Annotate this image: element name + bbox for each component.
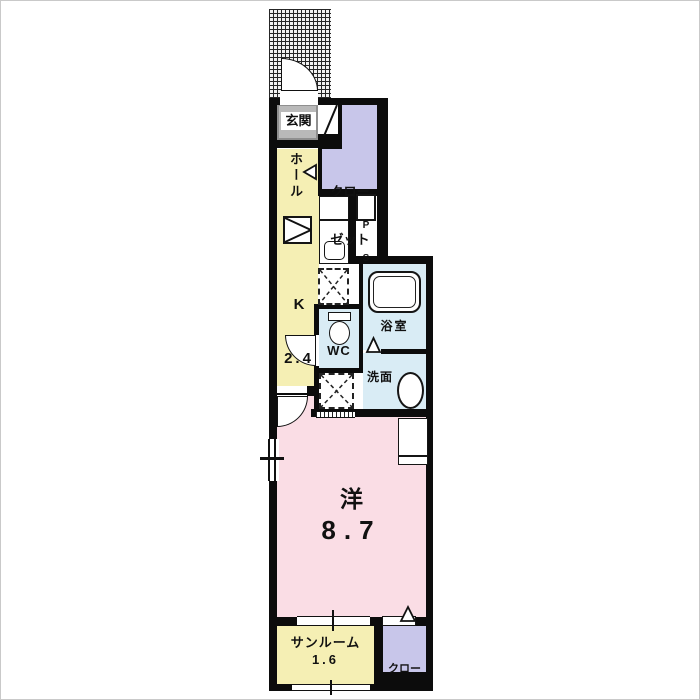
wall-bath-washroom [381, 349, 426, 354]
window-crossbar [260, 457, 284, 460]
kitchen-label: K 2.4 [277, 260, 321, 404]
wc-label: WC [319, 344, 359, 359]
entrance-door-opening [280, 91, 318, 105]
window-line-inner [274, 439, 276, 481]
closet-top-label: クロー ゼット [322, 152, 378, 280]
bathtub-inner [373, 276, 416, 308]
counter-shelf [398, 418, 428, 456]
toilet-tank [328, 312, 351, 321]
entrance-door-recess [318, 104, 338, 135]
western-room-label: 洋 [277, 486, 426, 512]
western-room-size: 8.7 [277, 516, 426, 546]
wall-room-bottom-c [415, 617, 426, 626]
closet-door-track [382, 616, 416, 626]
wall-right-upper [377, 98, 388, 264]
closet-bottom-label-line1: クロー [383, 662, 426, 676]
closet-top-label-line1: クロー [322, 184, 378, 200]
genkan-label-chip: 玄関 [281, 112, 316, 130]
bath-label: 浴室 [363, 320, 426, 334]
counter-shelf-edge [398, 456, 428, 465]
wall-sunroom-closet [374, 617, 383, 691]
sliding-window-center-tick [332, 610, 334, 631]
stove-symbol [283, 216, 312, 244]
wall-right-main [426, 256, 433, 691]
closet-top-label-line2: ゼット [322, 232, 378, 248]
toilet-bowl [329, 321, 350, 345]
washroom-threshold [316, 411, 355, 418]
wash-basin [397, 372, 424, 409]
washroom-label: 洗面 [359, 371, 401, 385]
kitchen-label-size: 2.4 [277, 350, 321, 368]
entry-step-edge [277, 140, 318, 148]
hall-label: ホール [284, 151, 302, 201]
wall-left [269, 98, 277, 691]
washer-pan [319, 373, 354, 409]
sunroom-size: 1.6 [277, 653, 374, 668]
floorplan-canvas: P S 玄関 ホール クロー ゼット K 2.4 WC 浴室 洗面 洋 8.7 … [0, 0, 700, 700]
window-line-outer [268, 439, 270, 481]
wall-room-bottom-a [277, 617, 299, 626]
sunroom-label: サンルーム [277, 636, 374, 651]
genkan-label: 玄関 [281, 112, 316, 130]
room-closet-top-upper [342, 104, 377, 149]
kitchen-label-k: K [277, 296, 321, 314]
sliding-window-outer-tick [330, 680, 332, 695]
closet-bottom-label: クロー ゼット [383, 634, 426, 700]
